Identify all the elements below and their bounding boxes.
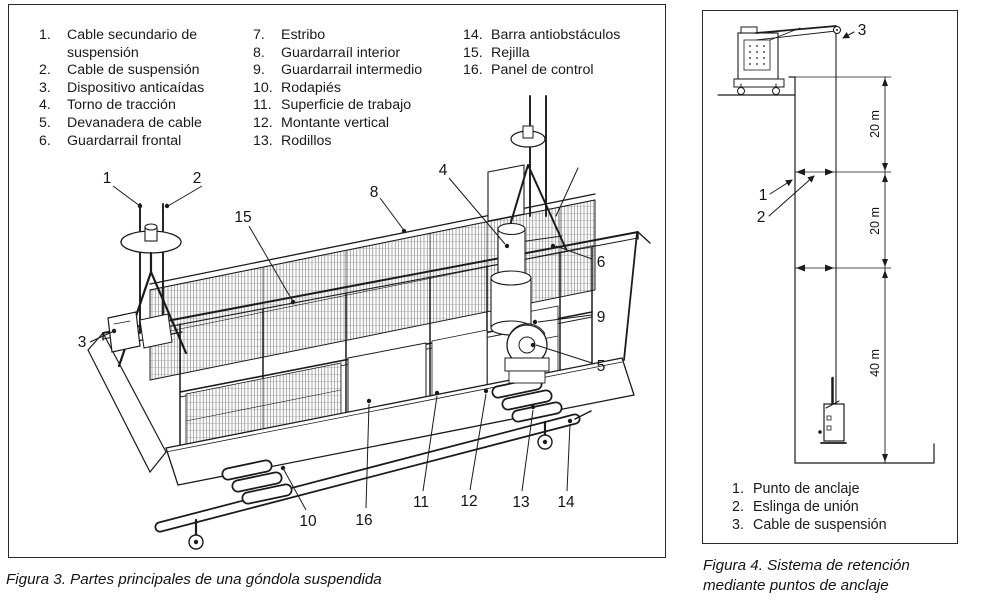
page: 1.Cable secundario de suspensión 2.Cable…	[0, 0, 995, 608]
figure3-panel: 1.Cable secundario de suspensión 2.Cable…	[8, 4, 666, 558]
list-item: 11.Superficie de trabajo	[253, 97, 459, 115]
item-label: Superficie de trabajo	[281, 97, 459, 115]
list-item: 10.Rodapiés	[253, 80, 459, 98]
figure4-caption-line1: Figura 4. Sistema de retención	[703, 556, 973, 576]
item-label: Rodapiés	[281, 80, 459, 98]
item-label: Dispositivo anticaídas	[67, 80, 251, 98]
item-label: Rodillos	[281, 133, 459, 151]
item-number: 5.	[39, 115, 67, 133]
item-label: Panel de control	[491, 62, 661, 80]
parts-list-column-1: 1.Cable secundario de suspensión 2.Cable…	[39, 27, 251, 150]
list-item: 6.Guardarrail frontal	[39, 133, 251, 151]
item-number: 2.	[39, 62, 67, 80]
list-item: 3.Dispositivo anticaídas	[39, 80, 251, 98]
item-number: 16.	[463, 62, 491, 80]
item-label: Cable secundario de suspensión	[67, 27, 251, 62]
item-label: Guardarrail intermedio	[281, 62, 459, 80]
item-label: Eslinga de unión	[753, 498, 859, 516]
item-label: Montante vertical	[281, 115, 459, 133]
item-number: 9.	[253, 62, 281, 80]
list-item: 16.Panel de control	[463, 62, 661, 80]
item-number: 13.	[253, 133, 281, 151]
list-item: 12.Montante vertical	[253, 115, 459, 133]
figure4-caption: Figura 4. Sistema de retención mediante …	[703, 556, 973, 596]
parts-list-column-2: 7.Estribo 8.Guardarraíl interior 9.Guard…	[253, 27, 459, 150]
list-item: 15.Rejilla	[463, 45, 661, 63]
item-number: 10.	[253, 80, 281, 98]
item-number: 6.	[39, 133, 67, 151]
item-number: 1.	[732, 480, 753, 498]
figure3-caption: Figura 3. Partes principales de una gónd…	[6, 570, 486, 590]
item-label: Barra antiobstáculos	[491, 27, 661, 45]
legend-item: 1.Punto de anclaje	[732, 480, 887, 498]
list-item: 2.Cable de suspensión	[39, 62, 251, 80]
item-label: Punto de anclaje	[753, 480, 860, 498]
item-number: 3.	[39, 80, 67, 98]
list-item: 9.Guardarrail intermedio	[253, 62, 459, 80]
item-label: Rejilla	[491, 45, 661, 63]
item-number: 12.	[253, 115, 281, 133]
list-item: 14.Barra antiobstáculos	[463, 27, 661, 45]
list-item: 7.Estribo	[253, 27, 459, 45]
item-number: 2.	[732, 498, 753, 516]
item-number: 15.	[463, 45, 491, 63]
list-item: 13.Rodillos	[253, 133, 459, 151]
legend-item: 3.Cable de suspensión	[732, 516, 887, 534]
item-label: Devanadera de cable	[67, 115, 251, 133]
figure4-legend: 1.Punto de anclaje 2.Eslinga de unión 3.…	[732, 480, 887, 534]
item-number: 11.	[253, 97, 281, 115]
item-number: 4.	[39, 97, 67, 115]
item-number: 8.	[253, 45, 281, 63]
item-number: 14.	[463, 27, 491, 45]
list-item: 4.Torno de tracción	[39, 97, 251, 115]
legend-item: 2.Eslinga de unión	[732, 498, 887, 516]
item-label: Guardarraíl interior	[281, 45, 459, 63]
item-label: Estribo	[281, 27, 459, 45]
figure4-caption-line2: mediante puntos de anclaje	[703, 576, 973, 596]
parts-list-column-3: 14.Barra antiobstáculos 15.Rejilla 16.Pa…	[463, 27, 661, 80]
list-item: 1.Cable secundario de suspensión	[39, 27, 251, 62]
item-number: 7.	[253, 27, 281, 45]
item-number: 3.	[732, 516, 753, 534]
item-label: Torno de tracción	[67, 97, 251, 115]
item-label: Cable de suspensión	[67, 62, 251, 80]
list-item: 8.Guardarraíl interior	[253, 45, 459, 63]
item-label: Guardarrail frontal	[67, 133, 251, 151]
list-item: 5.Devanadera de cable	[39, 115, 251, 133]
item-label: Cable de suspensión	[753, 516, 887, 534]
item-number: 1.	[39, 27, 67, 62]
figure4-panel: 1.Punto de anclaje 2.Eslinga de unión 3.…	[702, 10, 958, 544]
